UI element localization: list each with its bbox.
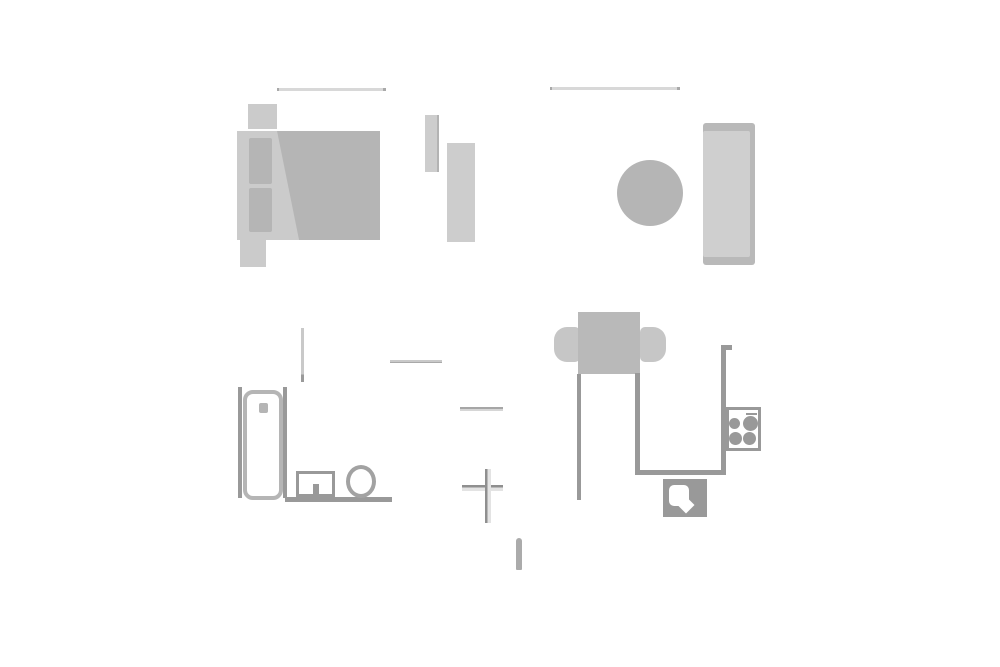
sofa-icon <box>703 123 755 265</box>
sink-basin <box>669 485 689 506</box>
door-marker-line <box>460 407 503 411</box>
bed-pillow-icon <box>249 188 272 232</box>
cross-marker-icon <box>462 485 503 491</box>
window-living-icon <box>550 87 680 90</box>
kitchen-counter-outline <box>635 470 726 475</box>
wardrobe-large-icon <box>447 143 475 242</box>
stove-burner-icon <box>743 432 756 445</box>
washbasin-tap-icon <box>313 484 319 494</box>
bed-pillow-icon <box>249 138 272 184</box>
bed-bench-icon <box>240 240 266 267</box>
kitchen-sink-icon <box>663 479 707 517</box>
bathroom-floor-line <box>285 497 392 502</box>
kitchen-counter-outline <box>577 374 581 500</box>
shower-head-icon <box>259 403 268 413</box>
toilet-icon <box>346 465 376 498</box>
bathroom-wall-line <box>283 387 287 498</box>
dining-chair-icon <box>640 327 666 362</box>
stove-burner-icon <box>743 416 758 431</box>
wardrobe-small-icon <box>425 115 439 172</box>
stove-icon <box>726 407 761 451</box>
door-marker-line <box>390 360 442 363</box>
washbasin-icon <box>296 471 335 497</box>
stove-burner-icon <box>729 418 740 429</box>
dining-table-icon <box>578 312 640 374</box>
stove-burner-icon <box>729 432 742 445</box>
door-stop-marker-icon <box>516 538 522 570</box>
sofa-seat <box>703 131 750 257</box>
floor-plan-canvas <box>0 0 1000 667</box>
hall-wall-line <box>301 328 304 382</box>
round-side-table-icon <box>617 160 683 226</box>
kitchen-counter-outline <box>721 345 732 350</box>
dining-chair-icon <box>554 327 580 362</box>
kitchen-counter-outline <box>635 373 640 474</box>
nightstand-icon <box>248 104 277 129</box>
cross-marker-icon <box>485 469 491 523</box>
window-bedroom-icon <box>277 88 386 91</box>
bathroom-wall-line <box>238 387 242 498</box>
stove-panel-line <box>746 413 757 415</box>
